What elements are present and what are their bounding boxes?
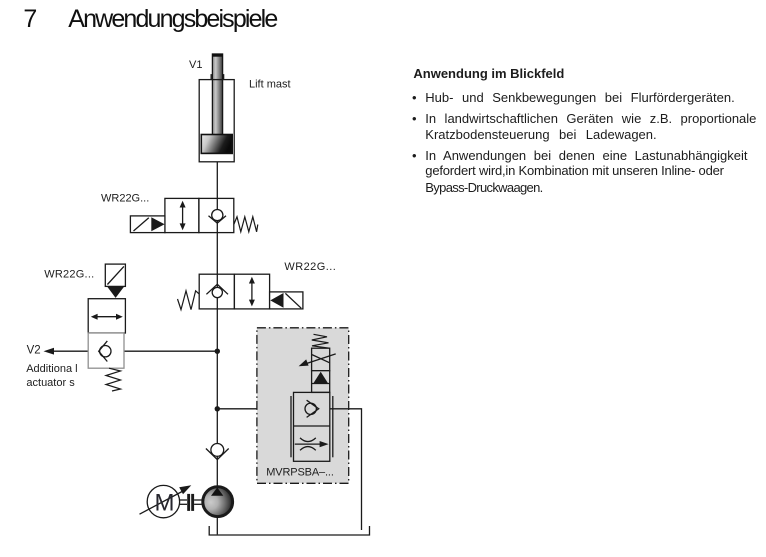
svg-text:WR22G...: WR22G... bbox=[44, 269, 94, 281]
svg-text:M: M bbox=[155, 490, 175, 517]
svg-text:WR22G...: WR22G... bbox=[284, 261, 336, 273]
svg-text:Additiona l: Additiona l bbox=[26, 363, 77, 375]
svg-text:actuator s: actuator s bbox=[26, 377, 75, 389]
svg-text:V1: V1 bbox=[189, 59, 202, 71]
svg-text:MVRPSBA–...: MVRPSBA–... bbox=[266, 466, 334, 478]
svg-text:V2: V2 bbox=[27, 345, 41, 357]
svg-text:Lift mast: Lift mast bbox=[249, 79, 291, 91]
svg-text:WR22G...: WR22G... bbox=[101, 193, 149, 205]
